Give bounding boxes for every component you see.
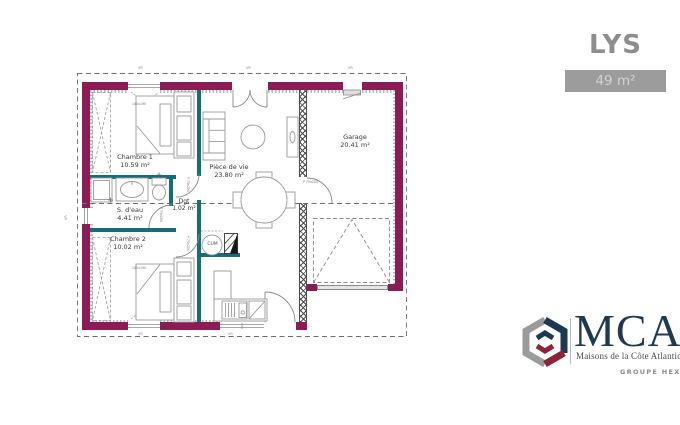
shutter-tag: VR: [228, 332, 233, 336]
shutter-tag: VR: [246, 66, 251, 70]
room-name: Pièce de vie: [189, 163, 269, 171]
dining-set: [233, 172, 295, 228]
room-area: 20.41 m²: [315, 141, 395, 149]
room-name: Garage: [315, 133, 395, 141]
water-heater-label: CUM: [203, 242, 222, 247]
coffee-table: [241, 125, 265, 149]
room-label-piece-de-vie: Pièce de vie 23.80 m²: [189, 163, 269, 179]
room-area: 1.02 m²: [160, 205, 208, 212]
mca-logo-icon: [518, 315, 572, 369]
shutter-tag: VR: [64, 215, 68, 220]
room-area: 10.02 m²: [88, 243, 168, 251]
room-label-dgt: Dgt 1.02 m²: [160, 198, 208, 212]
room-label-sdeau: S. d'eau 4.41 m²: [95, 206, 165, 222]
room-name: Chambre 1: [95, 153, 175, 161]
room-area: 4.41 m²: [95, 214, 165, 222]
logo-divider: [570, 318, 571, 364]
door-tag: P 75x204: [303, 180, 318, 184]
brand-block: MCA Maisons de la Côte Atlantique GROUPE…: [516, 310, 680, 385]
sofa: [203, 112, 225, 160]
room-label-chambre1: Chambre 1 10.59 m²: [95, 153, 175, 169]
door-tag: P 75x204: [159, 207, 163, 222]
garage-door-swing: [314, 219, 390, 283]
model-title: LYS: [565, 30, 666, 60]
door-tag: P 75x204: [186, 177, 190, 192]
bathroom-fixtures: [91, 178, 166, 202]
logo-wordmark: MCA: [574, 304, 680, 357]
door-tag: P 75x204: [186, 236, 190, 251]
area-badge: 49 m²: [565, 70, 666, 92]
group-label: GROUPE HEXAOM: [620, 368, 680, 376]
bed-size-label: 140x190: [132, 102, 146, 106]
room-label-chambre2: Chambre 2 10.02 m²: [88, 235, 168, 251]
garage-service-door: [343, 90, 361, 99]
sideboard: [287, 117, 298, 157]
room-area: 10.59 m²: [95, 161, 175, 169]
shutter-tag: VR: [138, 332, 143, 336]
shutter-tag: VR: [138, 66, 143, 70]
technical-duct: [225, 234, 238, 254]
room-area: 23.80 m²: [189, 171, 269, 179]
room-label-garage: Garage 20.41 m²: [315, 133, 395, 149]
page: Chambre 1 10.59 m² S. d'eau 4.41 m² Dgt …: [0, 0, 680, 425]
kitchen-counter: [214, 271, 267, 321]
logo-subtitle: Maisons de la Côte Atlantique: [576, 351, 680, 361]
room-name: Chambre 2: [88, 235, 168, 243]
bed-size-label: 140x190: [132, 266, 146, 270]
shutter-tag: VR: [348, 66, 353, 70]
room-name: Dgt: [160, 198, 208, 205]
room-name: S. d'eau: [95, 206, 165, 214]
